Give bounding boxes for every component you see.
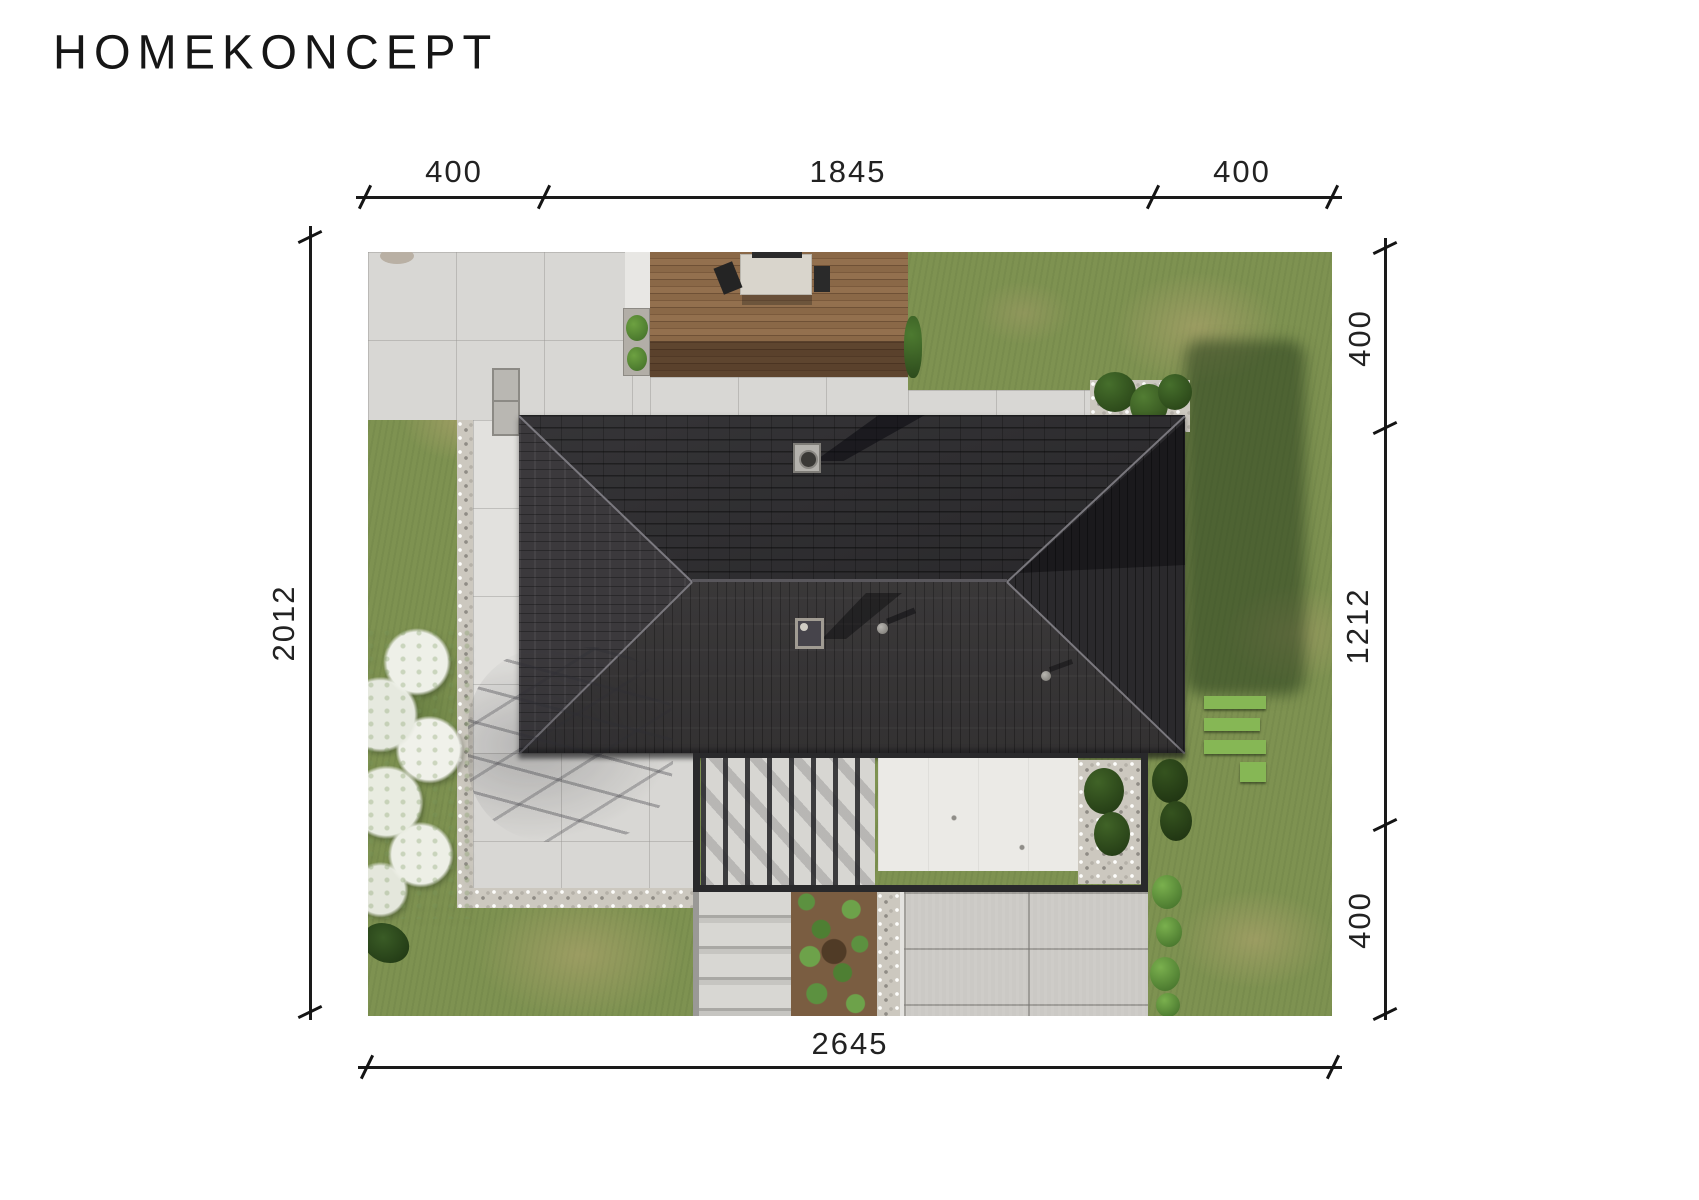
shrub <box>1152 759 1188 803</box>
dim-label-left: 2012 <box>266 585 302 662</box>
dim-label-top-right: 400 <box>1213 154 1271 190</box>
entry-steps <box>693 892 791 1016</box>
dim-line-top <box>356 196 1342 199</box>
hedge-row <box>1204 740 1266 754</box>
shrub <box>1156 993 1180 1016</box>
table-shadow <box>742 295 812 305</box>
gravel-border <box>877 892 900 1016</box>
shrub <box>627 347 647 371</box>
chimney-flue <box>799 450 818 469</box>
house-shadow-on-lawn <box>1185 340 1305 695</box>
chair <box>814 266 830 292</box>
shrub <box>1150 957 1180 991</box>
stone-planter <box>623 308 650 376</box>
dim-line-right <box>1384 238 1387 1020</box>
dim-label-bottom: 2645 <box>812 1026 889 1062</box>
outdoor-table <box>740 254 812 295</box>
flowering-tree <box>368 627 472 919</box>
hedge-row <box>1204 696 1266 709</box>
skylight <box>795 618 824 649</box>
ac-unit <box>492 368 520 436</box>
tree-shadow <box>468 647 673 842</box>
shrub <box>1152 875 1182 909</box>
shrub <box>1156 917 1182 947</box>
concrete-apron <box>650 377 908 415</box>
roof-vent <box>877 623 888 634</box>
chimney <box>793 443 821 473</box>
hedge-row <box>1204 718 1260 731</box>
dim-label-right-middle: 1212 <box>1340 588 1376 665</box>
garden-bed <box>791 892 877 1016</box>
dim-label-right-top: 400 <box>1342 309 1378 367</box>
shrub <box>626 315 648 341</box>
hedge-block <box>1240 762 1266 782</box>
shrub <box>1160 801 1192 841</box>
dim-label-top-left: 400 <box>425 154 483 190</box>
deck-shadow <box>650 341 908 377</box>
roof-ridge <box>692 579 1007 582</box>
site-aerial-render <box>368 252 1332 1016</box>
concrete-apron <box>908 390 1100 415</box>
deck-walkway <box>625 252 650 310</box>
dim-label-top-center: 1845 <box>810 154 887 190</box>
homekoncept-logo: HOMEKONCEPT <box>53 23 498 79</box>
driveway <box>900 892 1148 1016</box>
dim-line-bottom <box>358 1066 1342 1069</box>
corner-shrubs <box>1150 757 1198 857</box>
pergola-frame <box>693 753 1148 892</box>
shrub <box>1158 374 1192 410</box>
roof-vent <box>1041 671 1051 681</box>
bench <box>752 252 802 258</box>
dim-label-right-bottom: 400 <box>1342 891 1378 949</box>
hedge <box>904 316 922 378</box>
dim-line-left <box>309 226 312 1020</box>
gravel-border-horizontal <box>457 888 693 908</box>
skylight-glint <box>800 623 808 631</box>
